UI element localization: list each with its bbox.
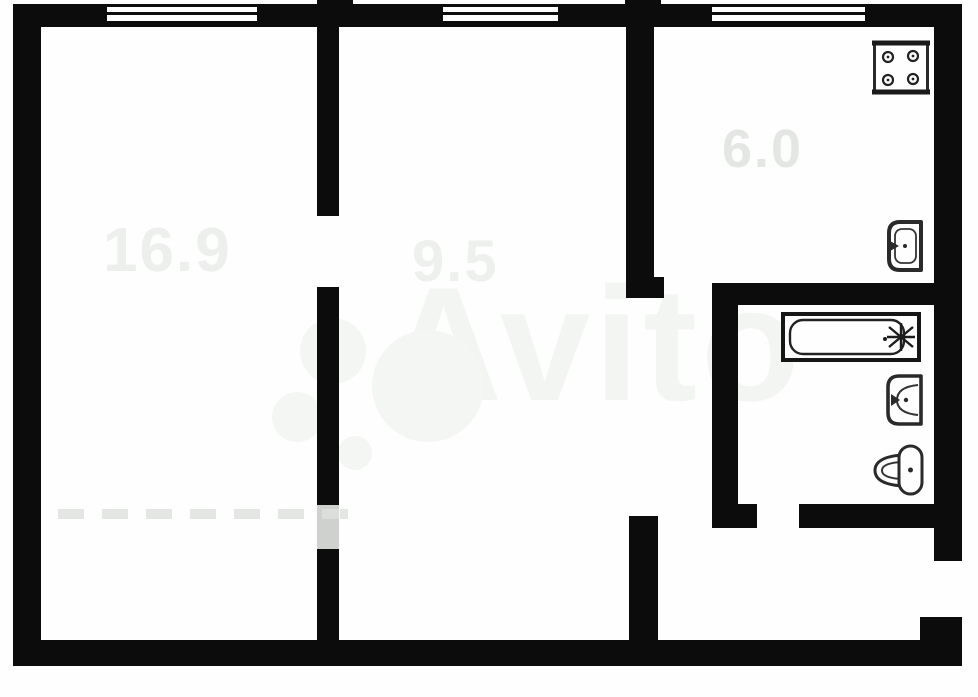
stove-icon [872, 39, 930, 101]
washbasin-icon [884, 373, 924, 432]
window-middle-room [443, 4, 558, 27]
avito-watermark-logo-circle [338, 436, 372, 470]
wall-bottom [13, 640, 960, 666]
window-kitchen [712, 4, 865, 27]
wall-middle-right-lower [629, 516, 658, 664]
wall-left [13, 4, 41, 666]
wall-bathroom-left [712, 295, 738, 528]
floor-plan: Avito 16.9 9.5 6.0 [0, 0, 978, 697]
bathtub-icon [781, 312, 921, 367]
wall-bathroom-left-foot [712, 504, 757, 528]
wall-middle-right-foot [626, 277, 664, 298]
kitchen-sink-icon [884, 218, 924, 279]
window-living-room [107, 4, 257, 27]
wall-living-middle-lower [317, 287, 339, 664]
living-room-area-label: 16.9 [103, 215, 232, 286]
watermark-dashed-line [58, 509, 348, 519]
wall-living-middle-upper [317, 4, 339, 216]
kitchen-area-label: 6.0 [722, 118, 803, 180]
middle-room-area-label: 9.5 [412, 228, 499, 295]
toilet-icon [872, 444, 924, 501]
wall-middle-right-upper [626, 4, 654, 298]
wall-right-lower-corner [920, 617, 962, 666]
avito-watermark-logo-circle [272, 392, 322, 442]
watermark-artifact [315, 505, 340, 549]
avito-watermark-logo-circle [372, 330, 484, 442]
wall-bathroom-bottom [799, 504, 962, 528]
wall-kitchen-bottom [712, 283, 962, 305]
